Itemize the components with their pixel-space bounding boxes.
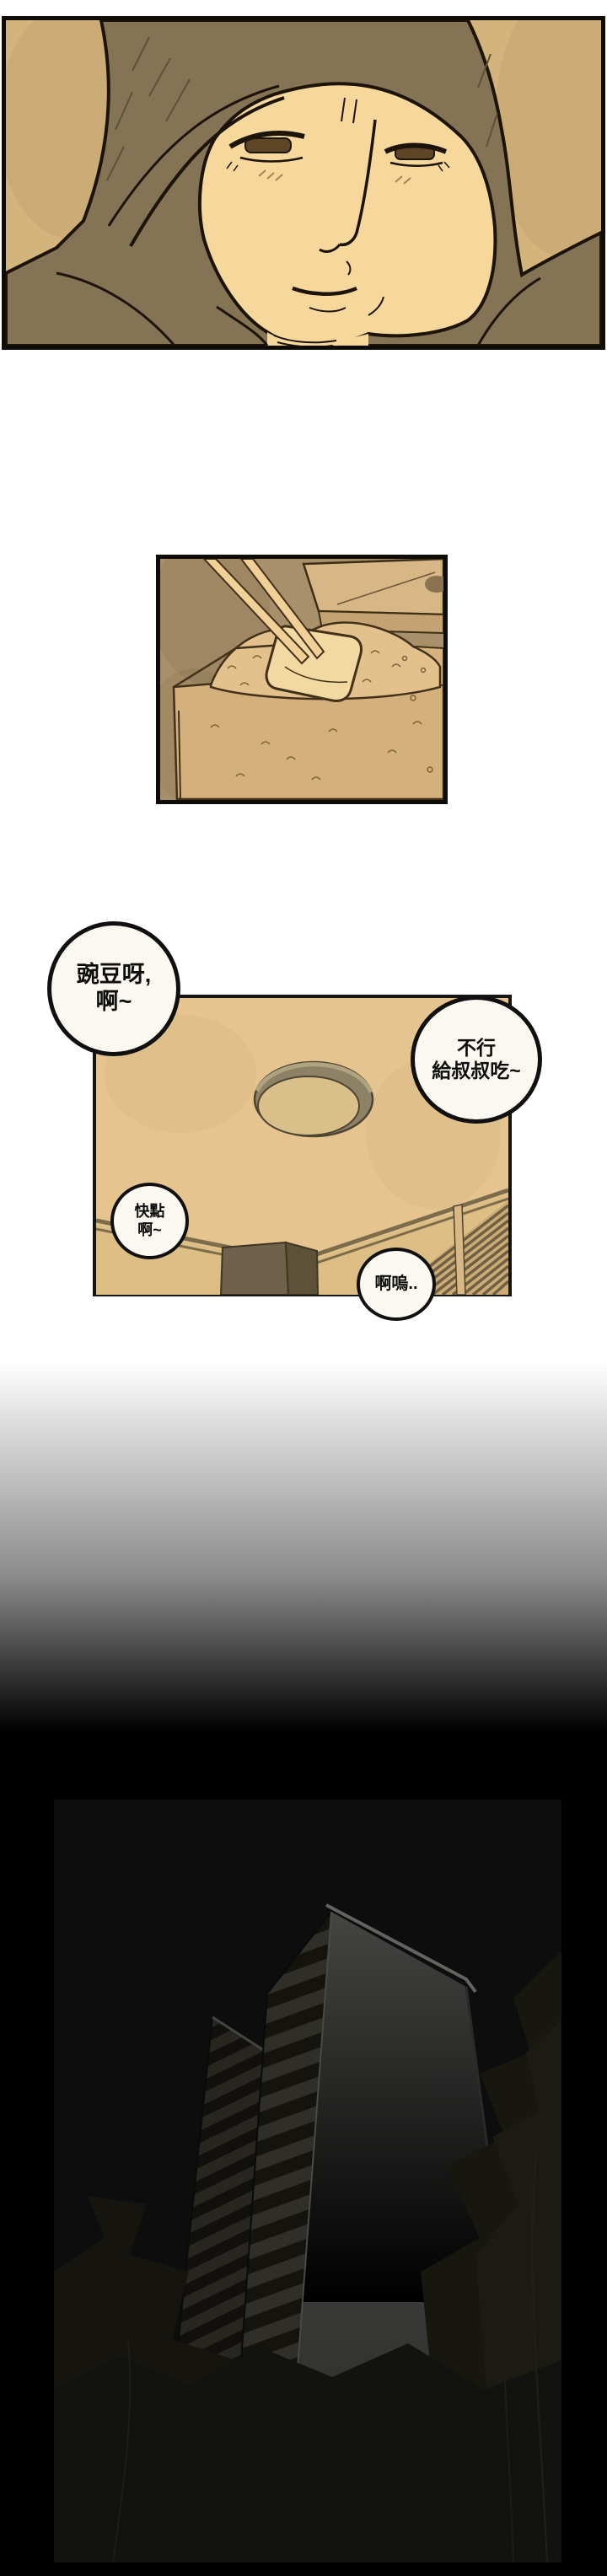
speech-bubble-nom: 啊嗚.. <box>357 1248 436 1321</box>
speech-text: 啊~ <box>137 1221 162 1239</box>
speech-text: 快點 <box>135 1203 165 1221</box>
left-iris <box>245 138 291 153</box>
speech-text: 給叔叔吃~ <box>432 1060 520 1082</box>
speech-text: 啊~ <box>96 989 132 1016</box>
speech-text: 啊嗚.. <box>374 1275 417 1295</box>
wardrobe <box>221 1242 318 1295</box>
speech-text: 豌豆呀, <box>77 962 152 989</box>
night-building-artwork <box>54 1800 561 2563</box>
speech-text: 不行 <box>457 1037 496 1060</box>
speech-bubble-peas: 豌豆呀, 啊~ <box>47 921 180 1056</box>
webtoon-page: 豌豆呀, 啊~ 不行 給叔叔吃~ 快點 啊~ 啊嗚.. <box>0 0 607 2576</box>
lunchbox-artwork <box>160 559 443 800</box>
back-box <box>303 559 443 633</box>
speech-bubble-no: 不行 給叔叔吃~ <box>411 996 542 1124</box>
face-closeup-artwork <box>6 20 601 346</box>
ceiling-lamp <box>255 1062 373 1136</box>
panel-lunchbox <box>156 555 448 804</box>
panel-face-closeup <box>2 16 605 350</box>
speech-bubble-hurry: 快點 啊~ <box>110 1183 189 1259</box>
panel-night-building <box>54 1800 561 2563</box>
